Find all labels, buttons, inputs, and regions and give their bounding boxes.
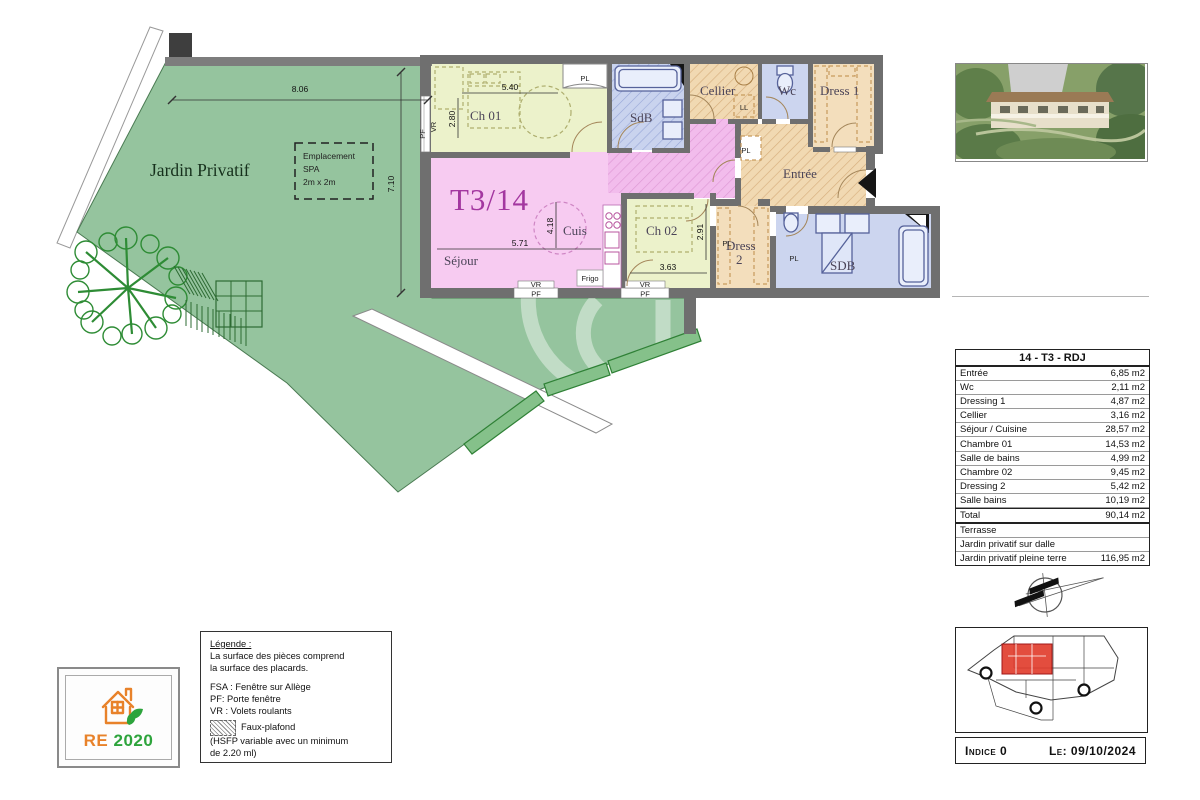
floor-plan-drawing: Emplacement SPA 2m x 2m Jardin Privatif bbox=[0, 0, 960, 560]
room-label-wc: Wc bbox=[778, 83, 796, 98]
title-block: Indice 0 Le: 09/10/2024 bbox=[955, 737, 1146, 764]
dim-sejour-width: 5.71 bbox=[512, 238, 529, 248]
kitchen-fixtures bbox=[603, 205, 621, 288]
table-row: Chambre 0114,53 m2 bbox=[956, 437, 1149, 451]
ann-pf-1: PF bbox=[531, 290, 541, 299]
row-value: 14,53 m2 bbox=[1105, 439, 1145, 450]
ann-vr-2: VR bbox=[640, 280, 651, 289]
row-value: 28,57 m2 bbox=[1105, 424, 1145, 435]
dim-garden-height: 7.10 bbox=[386, 175, 396, 192]
legend-line: La surface des pièces comprend bbox=[210, 651, 382, 663]
dim-garden-width: 8.06 bbox=[292, 84, 309, 94]
ann-vr-1: VR bbox=[531, 280, 542, 289]
ann-pl-4: PL bbox=[789, 254, 798, 263]
table-row: Séjour / Cuisine28,57 m2 bbox=[956, 423, 1149, 437]
table-row: Dressing 25,42 m2 bbox=[956, 480, 1149, 494]
row-label: Chambre 01 bbox=[960, 439, 1012, 450]
row-label: Chambre 02 bbox=[960, 467, 1012, 478]
dim-cuisine-height: 4.18 bbox=[545, 217, 555, 234]
spa-line1: Emplacement bbox=[303, 151, 356, 161]
spa-line2: SPA bbox=[303, 164, 320, 174]
room-label-cellier: Cellier bbox=[700, 83, 736, 98]
spa-line3: 2m x 2m bbox=[303, 177, 336, 187]
ann-pf-2: PF bbox=[640, 290, 650, 299]
re2020-box: RE 2020 bbox=[57, 667, 180, 768]
total-value: 90,14 m2 bbox=[1105, 510, 1145, 521]
legend-line: la surface des placards. bbox=[210, 663, 382, 675]
row-value: 4,99 m2 bbox=[1111, 453, 1145, 464]
row-label: Jardin privatif sur dalle bbox=[960, 539, 1055, 550]
re2020-house-icon bbox=[93, 685, 145, 731]
row-label: Jardin privatif pleine terre bbox=[960, 553, 1067, 564]
room-label-ch02: Ch 02 bbox=[646, 223, 677, 238]
row-value: 2,11 m2 bbox=[1111, 382, 1145, 393]
indice-label: Indice 0 bbox=[965, 744, 1007, 758]
table-row: Salle bains10,19 m2 bbox=[956, 494, 1149, 508]
right-column-divider bbox=[952, 296, 1149, 297]
row-value: 9,45 m2 bbox=[1111, 467, 1145, 478]
legend-heading: Légende : bbox=[210, 639, 382, 651]
table-row: Wc2,11 m2 bbox=[956, 381, 1149, 395]
table-row: Entrée6,85 m2 bbox=[956, 367, 1149, 381]
legend-faux-plafond-row: Faux-plafond bbox=[210, 720, 382, 736]
re2020-re: RE bbox=[84, 731, 109, 750]
ann-frigo: Frigo bbox=[581, 274, 598, 283]
ann-pl-3: PL bbox=[722, 239, 731, 248]
ann-pf-3: PF bbox=[418, 129, 427, 139]
row-label: Wc bbox=[960, 382, 974, 393]
area-table-title: 14 - T3 - RDJ bbox=[956, 350, 1149, 367]
area-table: 14 - T3 - RDJ Entrée6,85 m2 Wc2,11 m2 Dr… bbox=[955, 349, 1150, 566]
dim-ch02-height: 2.91 bbox=[695, 223, 705, 240]
room-dress1 bbox=[813, 63, 874, 147]
ann-pl-2: PL bbox=[741, 146, 750, 155]
room-label-dress1: Dress 1 bbox=[820, 83, 859, 98]
row-value: 4,87 m2 bbox=[1111, 396, 1145, 407]
key-plan bbox=[955, 627, 1148, 733]
dress1-slider bbox=[834, 147, 856, 152]
room-label-cuisine: Cuis bbox=[563, 223, 587, 238]
room-label-sdb-top: SdB bbox=[630, 110, 653, 125]
legend-box: Légende : La surface des pièces comprend… bbox=[200, 631, 392, 763]
ann-vr-3: VR bbox=[429, 121, 438, 132]
property-photo-image bbox=[956, 64, 1145, 159]
key-plan-highlight-unit bbox=[1002, 644, 1052, 674]
row-value: 6,85 m2 bbox=[1111, 368, 1145, 379]
table-row: Cellier3,16 m2 bbox=[956, 409, 1149, 423]
row-label: Salle de bains bbox=[960, 453, 1020, 464]
legend-hsfp2: de 2.20 ml) bbox=[210, 748, 382, 760]
dim-ch01-height: 2.80 bbox=[447, 110, 457, 127]
garden-label: Jardin Privatif bbox=[150, 160, 250, 180]
row-value: 10,19 m2 bbox=[1105, 495, 1145, 506]
room-label-ch01: Ch 01 bbox=[470, 108, 501, 123]
property-photo bbox=[955, 63, 1148, 162]
room-label-dress2-num: 2 bbox=[736, 252, 743, 267]
unit-label: T3/14 bbox=[450, 182, 529, 217]
table-row: Salle de bains4,99 m2 bbox=[956, 452, 1149, 466]
legend-faux-plafond: Faux-plafond bbox=[241, 722, 295, 734]
row-label: Entrée bbox=[960, 368, 988, 379]
floor-plan-sheet: { "plan": { "unit_label": "T3/14", "gard… bbox=[0, 0, 1200, 800]
ann-ll: LL bbox=[740, 103, 748, 112]
room-label-sdb-bottom: SDB bbox=[830, 258, 856, 273]
table-extra-row: Jardin privatif sur dalle bbox=[956, 538, 1149, 552]
legend-hsfp: (HSFP variable avec un minimum bbox=[210, 736, 382, 748]
table-row: Dressing 14,87 m2 bbox=[956, 395, 1149, 409]
row-label: Cellier bbox=[960, 410, 987, 421]
legend-pf: PF: Porte fenêtre bbox=[210, 694, 382, 706]
table-row: Chambre 029,45 m2 bbox=[956, 466, 1149, 480]
legend-vr: VR : Volets roulants bbox=[210, 706, 382, 718]
table-extra-row: Jardin privatif pleine terre116,95 m2 bbox=[956, 552, 1149, 565]
room-ch02 bbox=[627, 199, 710, 288]
re2020-year: 2020 bbox=[114, 731, 154, 750]
room-label-sejour: Séjour bbox=[444, 253, 479, 268]
total-label: Total bbox=[960, 510, 980, 521]
north-arrow-icon bbox=[1000, 565, 1110, 620]
legend-fsa: FSA : Fenêtre sur Allège bbox=[210, 682, 382, 694]
row-label: Dressing 1 bbox=[960, 396, 1005, 407]
row-value: 5,42 m2 bbox=[1111, 481, 1145, 492]
dim-ch01-width: 5.40 bbox=[502, 82, 519, 92]
faux-plafond-hatch-icon bbox=[210, 720, 236, 736]
row-label: Dressing 2 bbox=[960, 481, 1005, 492]
ann-pl-1: PL bbox=[580, 74, 589, 83]
re2020-label: RE 2020 bbox=[84, 731, 154, 751]
date-label: Le: 09/10/2024 bbox=[1049, 744, 1136, 758]
row-label: Salle bains bbox=[960, 495, 1006, 506]
dim-ch02-width: 3.63 bbox=[660, 262, 677, 272]
row-value: 116,95 m2 bbox=[1101, 553, 1145, 564]
row-label: Terrasse bbox=[960, 525, 996, 536]
row-label: Séjour / Cuisine bbox=[960, 424, 1027, 435]
re2020-inner: RE 2020 bbox=[65, 675, 172, 760]
room-label-entree: Entrée bbox=[783, 166, 817, 181]
row-value: 3,16 m2 bbox=[1111, 410, 1145, 421]
table-extra-row: Terrasse bbox=[956, 524, 1149, 538]
table-total-row: Total90,14 m2 bbox=[956, 508, 1149, 524]
